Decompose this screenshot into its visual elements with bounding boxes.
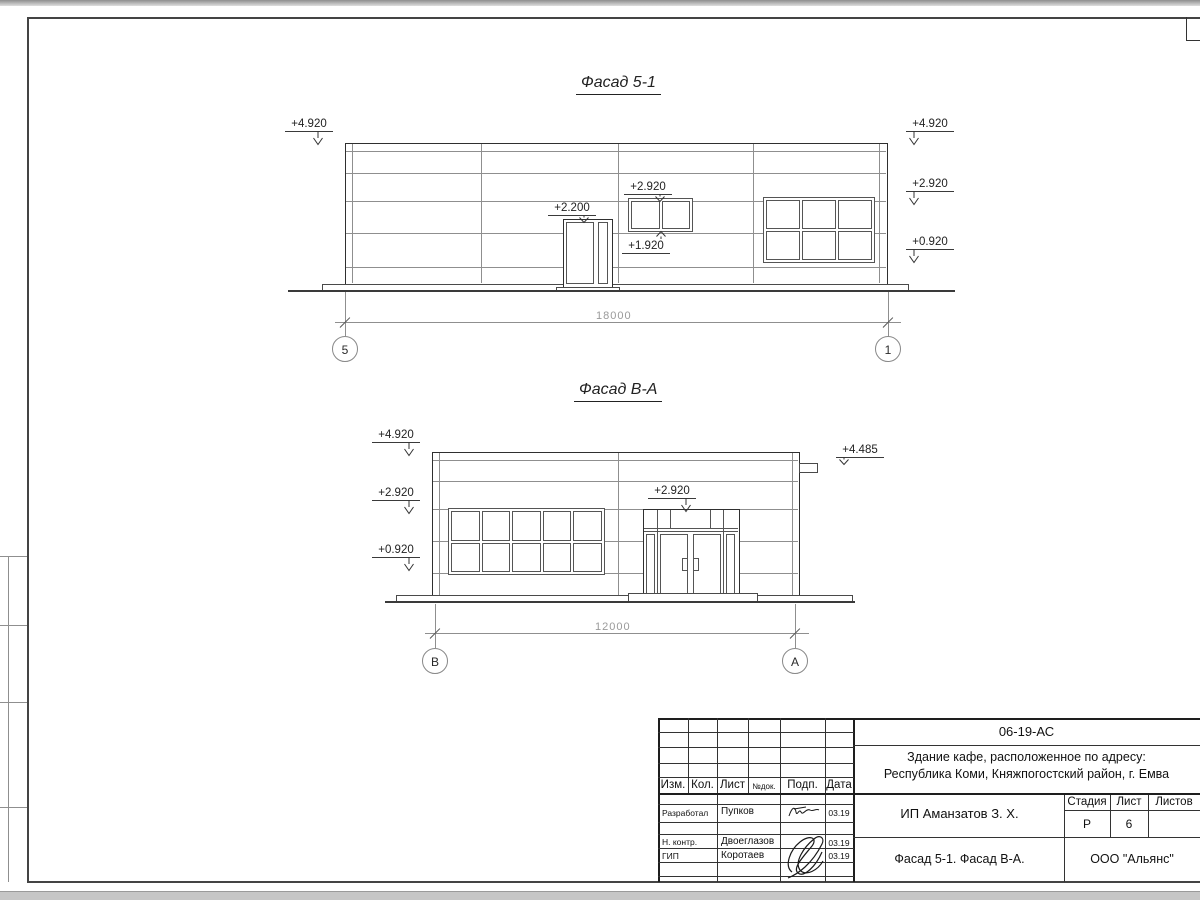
page-edge-top	[0, 0, 1200, 6]
dimension-line	[425, 633, 809, 634]
corner-stamp-line	[1186, 40, 1200, 41]
margin-label-podp: Подп. и дата	[0, 719, 3, 789]
elevation-value: +0.920	[372, 543, 420, 558]
stamp-grid-line	[658, 777, 854, 778]
frame-line-bottom	[27, 881, 1200, 883]
axis-marker-v: В	[422, 648, 448, 674]
transom-mullion	[710, 510, 711, 528]
listov-label: Листов	[1148, 796, 1200, 808]
corner-trim-line	[439, 453, 440, 600]
project-address-line1: Здание кафе, расположенное по адресу:	[853, 750, 1200, 764]
row-role: Разработал	[662, 808, 708, 818]
wall-panel-line	[346, 267, 886, 268]
dimension-value: 18000	[596, 310, 632, 322]
elevation-arrow-icon	[838, 457, 850, 465]
stamp-grid-line	[658, 732, 854, 733]
col-header-ndok: №док.	[748, 782, 780, 791]
signature	[786, 804, 822, 820]
stamp-grid-line	[1064, 810, 1200, 811]
row-date: 03.19	[825, 851, 853, 861]
corner-trim-line	[352, 144, 353, 283]
window-pane	[766, 231, 800, 260]
row-name: Двоеглазов	[721, 836, 774, 847]
ground-line	[385, 601, 855, 603]
panel-joint-line	[618, 144, 619, 283]
facade-v-a-title: Фасад В-А	[574, 381, 662, 402]
axis-marker-1: 1	[875, 336, 901, 362]
elevation-mark: +0.920	[372, 543, 420, 558]
stamp-grid-line	[717, 718, 718, 882]
row-date: 03.19	[825, 838, 853, 848]
sheet-title: Фасад 5-1. Фасад В-А.	[855, 852, 1064, 866]
company-name: ООО "Альянс"	[1064, 852, 1200, 866]
elevation-value: +0.920	[906, 235, 954, 250]
elevation-value: +4.920	[285, 117, 333, 132]
elevation-arrow-icon	[908, 131, 920, 145]
frame-line-top	[27, 17, 1200, 19]
large-window	[763, 197, 875, 263]
entrance-mullion	[723, 510, 724, 596]
extension-line	[795, 604, 796, 648]
sidelight	[726, 534, 735, 594]
window-pane	[482, 543, 511, 573]
wall-panel-line	[346, 173, 886, 174]
window-pane	[838, 231, 872, 260]
transom-line	[644, 531, 738, 532]
col-header-list: Лист	[717, 779, 748, 791]
window-pane	[543, 543, 572, 573]
window-pane	[573, 511, 602, 541]
window-pane	[838, 200, 872, 229]
elevation-mark: +4.920	[372, 428, 420, 443]
window-pane	[802, 200, 836, 229]
elevation-arrow-icon	[654, 194, 666, 202]
elevation-value: +2.920	[624, 180, 672, 195]
elevation-arrow-icon	[403, 442, 415, 456]
elevation-mark: +4.485	[836, 443, 884, 458]
corner-trim-line	[879, 144, 880, 283]
elevation-arrow-icon	[403, 557, 415, 571]
elevation-value: +1.920	[622, 239, 670, 254]
elevation-mark: +2.920	[372, 486, 420, 501]
elevation-value: +4.920	[906, 117, 954, 132]
list-value: 6	[1110, 817, 1148, 831]
col-header-kol: Кол.	[688, 779, 717, 791]
entrance-mullion	[657, 510, 658, 596]
margin-divider	[0, 556, 27, 557]
margin-label-vzam: Взам. инв. №	[0, 628, 3, 698]
panel-joint-line	[618, 453, 619, 600]
window-pane	[512, 543, 541, 573]
elevation-arrow-icon	[655, 231, 667, 239]
margin-divider	[0, 807, 27, 808]
margin-divider	[0, 625, 27, 626]
elevation-arrow-icon	[680, 498, 692, 512]
elevation-mark: +0.920	[906, 235, 954, 250]
entrance-door	[643, 509, 740, 598]
row-role: ГИП	[662, 851, 679, 861]
stamp-grid-line	[658, 822, 854, 823]
page-edge-bottom	[0, 891, 1200, 900]
elevation-arrow-icon	[312, 131, 324, 145]
window-pane	[573, 543, 602, 573]
door-side-panel	[598, 222, 608, 284]
corner-stamp-line	[1186, 17, 1187, 41]
parapet-projection	[799, 463, 818, 473]
signature	[782, 828, 828, 880]
window-pane	[766, 200, 800, 229]
stamp-grid-line	[853, 745, 1200, 746]
stamp-grid-line	[780, 718, 781, 882]
sidelight	[646, 534, 655, 594]
axis-marker-a: А	[782, 648, 808, 674]
col-header-podp: Подп.	[780, 779, 825, 791]
facade-5-1-title: Фасад 5-1	[576, 74, 661, 95]
window-pane	[802, 231, 836, 260]
wall-panel-line	[433, 481, 798, 482]
elevation-value: +4.920	[372, 428, 420, 443]
stamp-grid-line	[853, 837, 1200, 838]
margin-column-line	[8, 556, 9, 882]
window-pane	[451, 543, 480, 573]
stage-label: Стадия	[1064, 796, 1110, 808]
small-window	[628, 198, 693, 232]
extension-line	[345, 292, 346, 336]
parapet-band-line	[346, 151, 886, 152]
elevation-value: +2.200	[548, 201, 596, 216]
panel-joint-line	[481, 144, 482, 283]
row-name: Пупков	[721, 806, 754, 817]
elevation-arrow-icon	[578, 215, 590, 223]
window-pane	[631, 201, 660, 229]
stamp-border	[658, 718, 660, 882]
row-date: 03.19	[825, 808, 853, 818]
col-header-data: Дата	[825, 779, 853, 791]
window-pane	[512, 511, 541, 541]
col-header-izm: Изм.	[658, 779, 688, 791]
elevation-mark: +4.920	[285, 117, 333, 132]
elevation-mark: +2.920	[906, 177, 954, 192]
elevation-value: +2.920	[906, 177, 954, 192]
elevation-arrow-icon	[908, 191, 920, 205]
transom-line	[644, 528, 738, 529]
door-leaf	[566, 222, 594, 284]
elevation-arrow-icon	[908, 249, 920, 263]
stamp-border	[658, 793, 1200, 795]
parapet-band-line	[433, 460, 798, 461]
client-name: ИП Аманзатов З. Х.	[855, 806, 1064, 821]
door-handle	[682, 558, 688, 571]
stamp-grid-line	[658, 804, 854, 805]
elevation-mark: +1.920	[622, 239, 670, 254]
window-pane	[482, 511, 511, 541]
ribbon-window	[448, 508, 605, 575]
doc-number: 06-19-АС	[853, 724, 1200, 739]
elevation-mark: +4.920	[906, 117, 954, 132]
margin-label-inv: Инв. № подл.	[0, 809, 3, 879]
extension-line	[888, 292, 889, 336]
window-pane	[662, 201, 691, 229]
service-door	[563, 219, 613, 290]
extension-line	[435, 604, 436, 648]
elevation-mark: +2.920	[624, 180, 672, 195]
project-address-line2: Республика Коми, Княжпогостский район, г…	[853, 767, 1200, 781]
elevation-value: +2.920	[648, 484, 696, 499]
elevation-arrow-icon	[403, 500, 415, 514]
elevation-mark: +2.920	[648, 484, 696, 499]
transom-mullion	[670, 510, 671, 528]
list-label: Лист	[1110, 796, 1148, 808]
margin-divider	[0, 702, 27, 703]
elevation-value: +2.920	[372, 486, 420, 501]
stamp-border	[658, 718, 1200, 720]
row-role: Н. контр.	[662, 837, 697, 847]
stage-value: Р	[1064, 817, 1110, 831]
elevation-mark: +2.200	[548, 201, 596, 216]
axis-marker-5: 5	[332, 336, 358, 362]
row-name: Коротаев	[721, 850, 764, 861]
door-handle	[693, 558, 699, 571]
dimension-line	[335, 322, 901, 323]
frame-line-left	[27, 17, 29, 882]
corner-trim-line	[792, 453, 793, 600]
panel-joint-line	[753, 144, 754, 283]
stamp-grid-line	[658, 763, 854, 764]
dimension-value: 12000	[595, 621, 631, 633]
ground-line	[288, 290, 955, 292]
stamp-grid-line	[658, 747, 854, 748]
window-pane	[451, 511, 480, 541]
drawing-sheet: Взам. инв. № Подп. и дата Инв. № подл. Ф…	[0, 0, 1200, 900]
elevation-value: +4.485	[836, 443, 884, 458]
window-pane	[543, 511, 572, 541]
